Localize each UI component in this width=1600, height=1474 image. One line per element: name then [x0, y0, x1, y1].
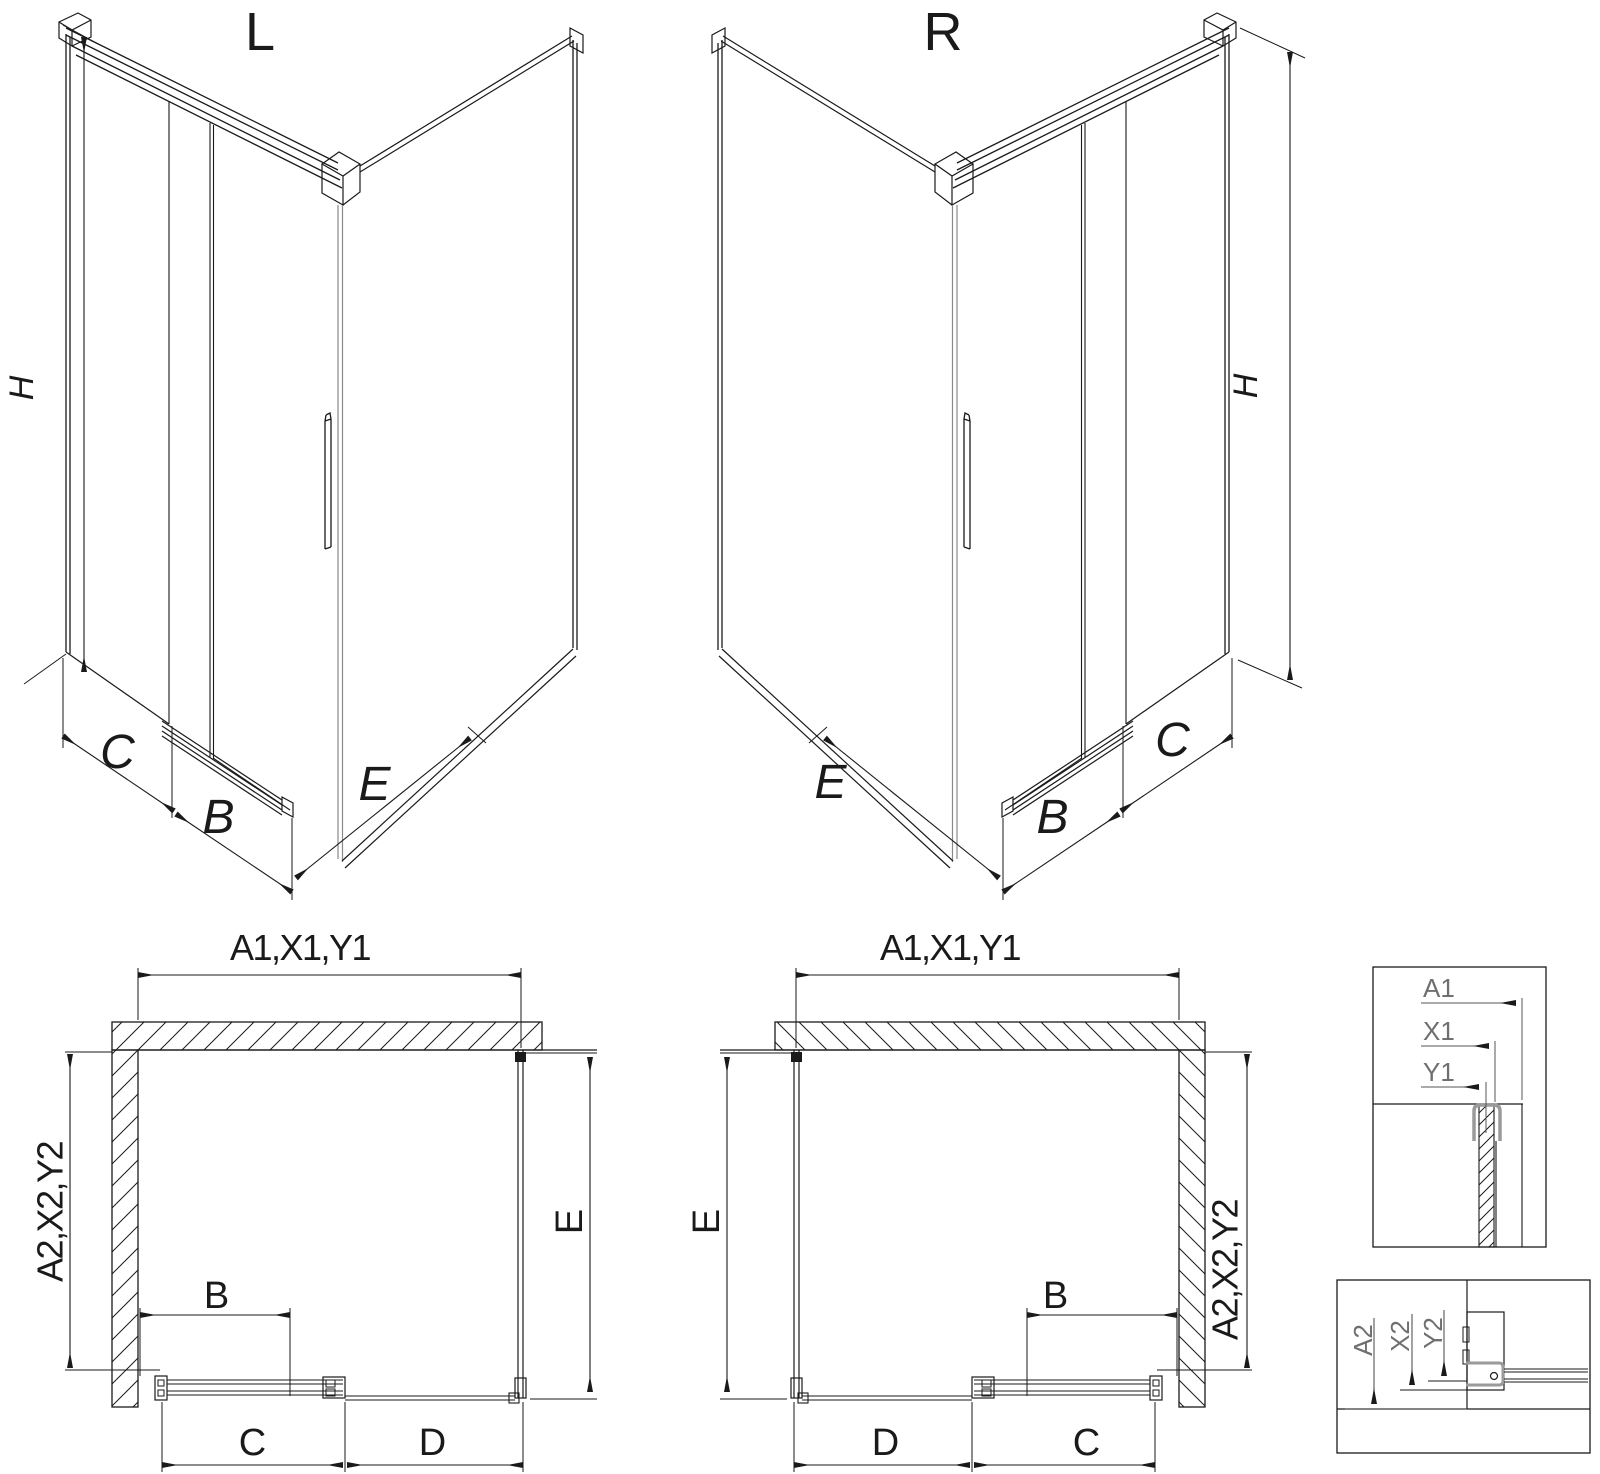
dim-label-e: E	[686, 1210, 728, 1234]
view-title-right: R	[924, 2, 963, 62]
dim-label-c: C	[100, 726, 135, 779]
dim-label-b: B	[204, 1275, 228, 1317]
iso-view-left: L H C B E	[3, 2, 583, 900]
view-title-left: L	[245, 2, 275, 62]
dim-label-c: C	[1155, 714, 1190, 767]
dim-label-e: E	[549, 1210, 591, 1234]
door-section-detail	[1467, 1312, 1504, 1390]
dim-label-a1x1y1: A1,X1,Y1	[880, 927, 1021, 968]
door-clip-detail	[1463, 1327, 1469, 1364]
fixed-panel-section-lines	[1504, 1369, 1588, 1382]
dim-label-b: B	[202, 791, 233, 844]
detail-view-bottom: A2 X2 Y2	[1337, 1280, 1590, 1453]
reference-lines	[1400, 1381, 1467, 1390]
detail-dim-label-y1: Y1	[1423, 1057, 1455, 1087]
detail-dim-label-x2: X2	[1385, 1320, 1415, 1352]
roller-detail	[1491, 1373, 1498, 1380]
detail-frame	[1373, 967, 1546, 1247]
dim-label-d: D	[872, 1422, 898, 1464]
dim-label-b: B	[1036, 791, 1067, 844]
iso-view-right: R H C B E	[712, 2, 1305, 900]
dim-label-e: E	[358, 758, 391, 811]
detail-view-top: A1 X1 Y1	[1373, 967, 1546, 1247]
detail-dim-label-x1: X1	[1423, 1016, 1455, 1046]
plan-view-left: A1,X1,Y1 A2,X2,Y2 E B C D	[30, 927, 598, 1472]
dim-label-e: E	[814, 756, 847, 809]
dim-label-h: H	[1227, 373, 1265, 398]
technical-drawing-canvas: L H C B E R H C B E A1,X1,Y1 A2,X2,Y2 E …	[0, 0, 1600, 1474]
dim-label-c: C	[1073, 1422, 1099, 1464]
dim-label-b: B	[1043, 1275, 1067, 1317]
detail-dim-label-a1: A1	[1423, 973, 1455, 1003]
dim-label-a1x1y1: A1,X1,Y1	[230, 927, 371, 968]
dim-ext-line	[1238, 28, 1305, 688]
dim-label-a2x2y2: A2,X2,Y2	[1205, 1199, 1246, 1340]
dim-label-h: H	[3, 375, 41, 400]
dim-label-a2x2y2: A2,X2,Y2	[30, 1141, 71, 1282]
plan-view-right: A1,X1,Y1 A2,X2,Y2 E B C D	[686, 927, 1252, 1472]
shower-enclosure-diagram-page: L H C B E R H C B E A1,X1,Y1 A2,X2,Y2 E …	[0, 0, 1600, 1474]
dim-label-c: C	[239, 1422, 265, 1464]
detail-frame	[1337, 1280, 1590, 1453]
dim-ext-line	[24, 25, 98, 684]
dim-label-d: D	[419, 1422, 445, 1464]
